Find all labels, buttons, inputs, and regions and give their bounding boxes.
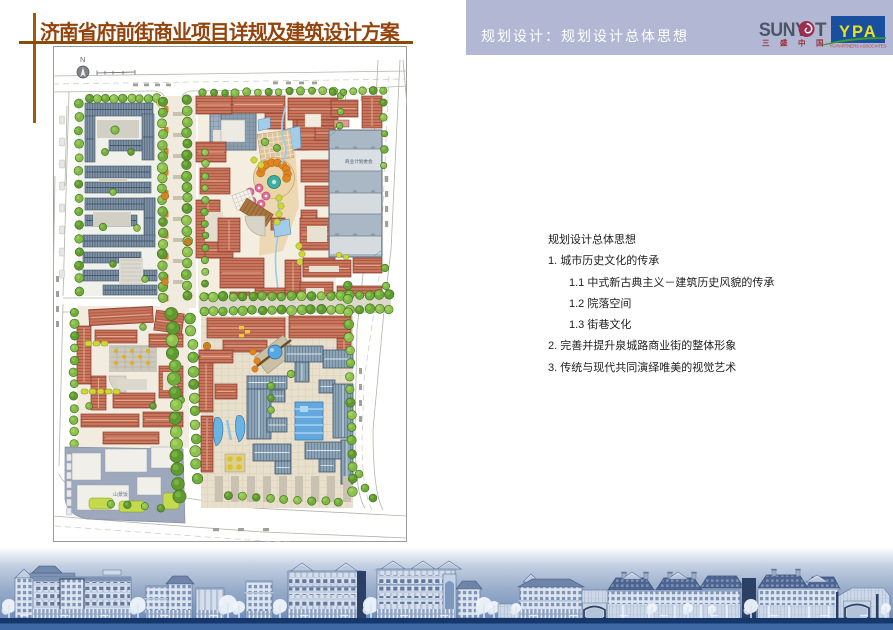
svg-text:YU PARTNERS ASSOCIATES: YU PARTNERS ASSOCIATES	[830, 44, 887, 49]
svg-text:N: N	[80, 55, 85, 64]
svg-text:山景饭: 山景饭	[113, 491, 128, 498]
svg-text:商业计划委会: 商业计划委会	[345, 158, 373, 165]
